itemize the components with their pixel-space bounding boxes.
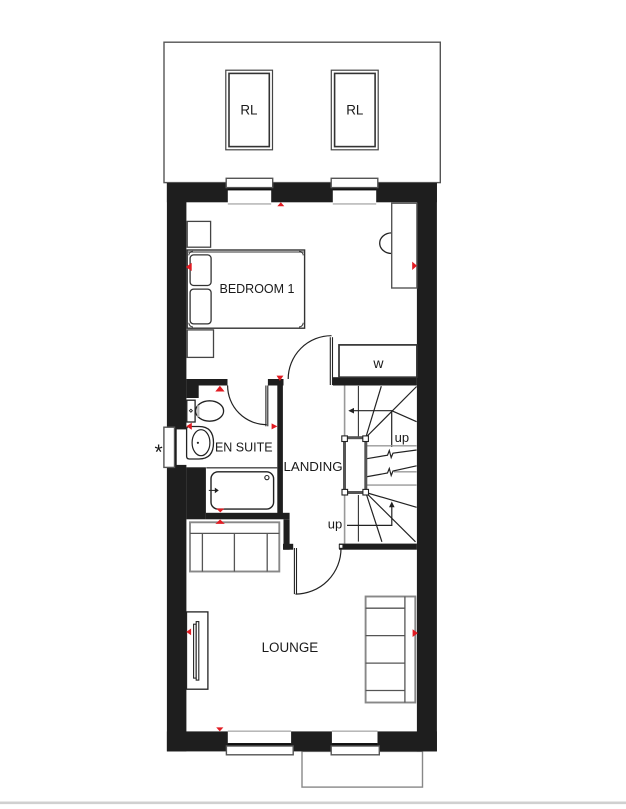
- svg-text:RL: RL: [240, 102, 257, 117]
- svg-text:up: up: [395, 430, 409, 445]
- svg-text:w: w: [372, 355, 384, 371]
- svg-text:LOUNGE: LOUNGE: [262, 640, 319, 655]
- svg-text:EN SUITE: EN SUITE: [215, 440, 273, 454]
- svg-text:RL: RL: [346, 102, 363, 117]
- svg-text:up: up: [328, 517, 342, 532]
- svg-text:BEDROOM 1: BEDROOM 1: [219, 282, 294, 296]
- svg-text:*: *: [155, 441, 163, 464]
- svg-text:LANDING: LANDING: [283, 459, 342, 474]
